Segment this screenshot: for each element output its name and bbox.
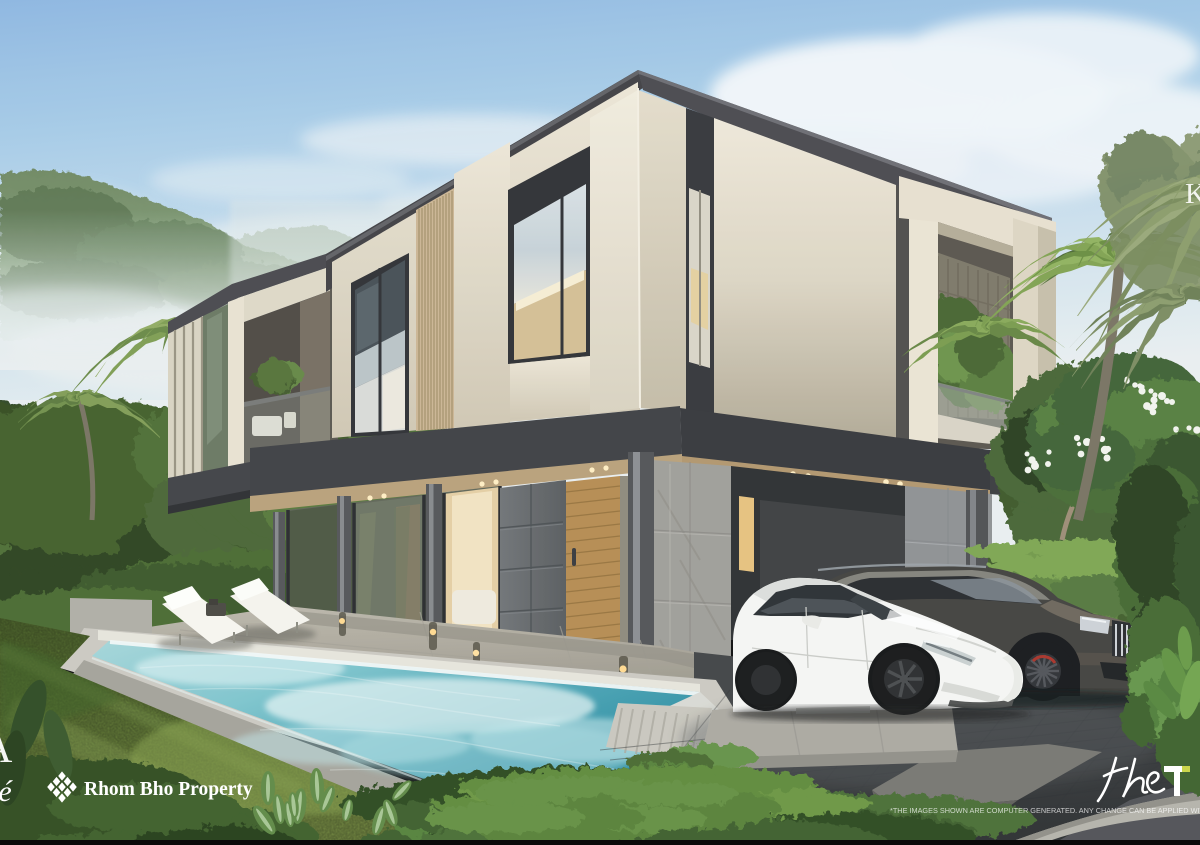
svg-text:*THE IMAGES SHOWN ARE COMPUTER: *THE IMAGES SHOWN ARE COMPUTER GENERATED…: [890, 806, 1200, 815]
svg-text:K: K: [1185, 178, 1200, 210]
svg-text:Rhom Bho Property: Rhom Bho Property: [84, 779, 253, 800]
svg-text:ié: ié: [0, 775, 13, 808]
svg-text:A: A: [0, 726, 13, 772]
